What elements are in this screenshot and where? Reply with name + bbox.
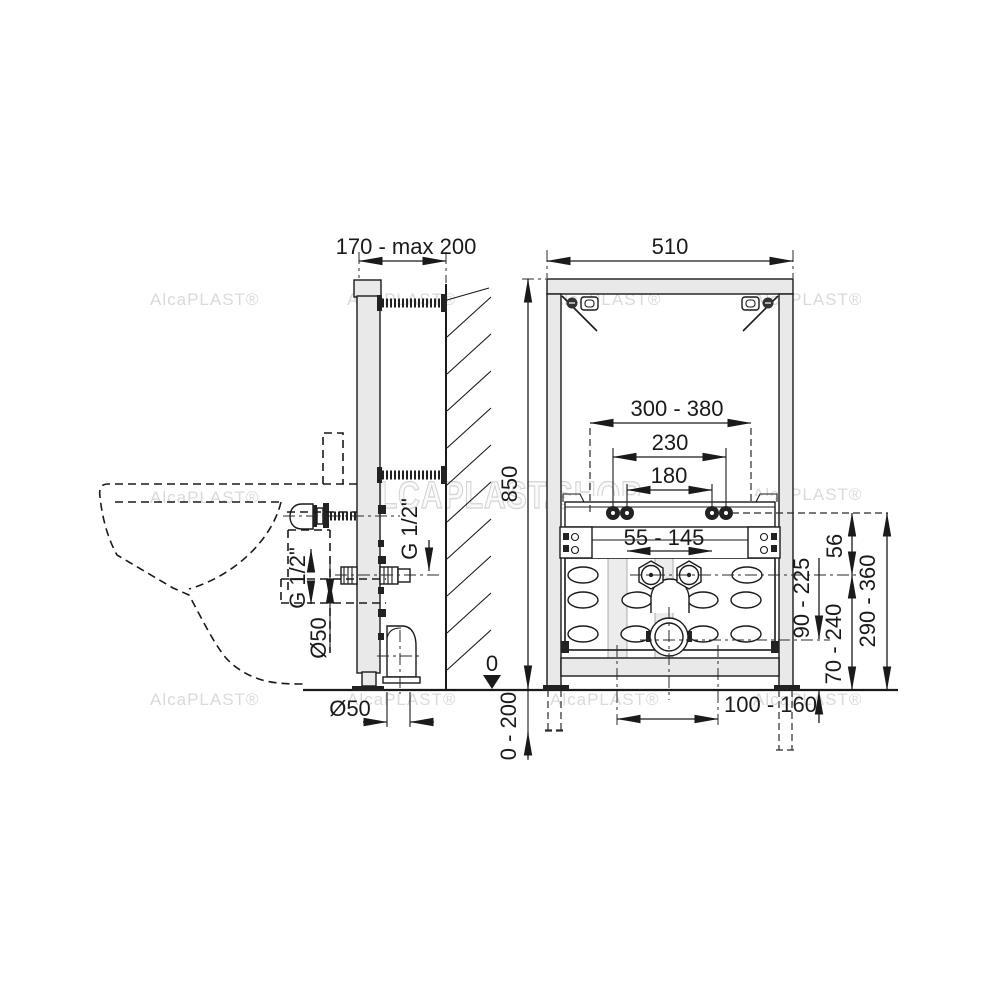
dim-depth-label: 170 - max 200	[336, 234, 477, 259]
dim-width-label: 510	[652, 234, 689, 259]
dim-water-height: 70 - 240	[821, 575, 852, 690]
dim-stud-height: 290 - 360	[855, 513, 887, 690]
watermark-text: AlcaPLAST®	[550, 690, 659, 709]
dim-thread-front-label: G 1/2"	[285, 547, 310, 609]
rail-clip-left	[561, 641, 569, 653]
frame-left-rail	[547, 294, 561, 687]
dim-stud-180-label: 180	[651, 463, 688, 488]
floor-datum: 0	[483, 651, 501, 689]
dim-rim-offset-label: 56	[822, 534, 847, 558]
dim-width: 510	[547, 234, 793, 278]
bidet-outline	[100, 433, 386, 684]
frame-foot-plate	[352, 686, 384, 691]
dim-leg-adjust-label: 0 - 200	[496, 692, 521, 761]
dim-stud-spread-label: 300 - 380	[631, 396, 724, 421]
dim-thread-front: G 1/2"	[285, 547, 311, 609]
floor-datum-label: 0	[486, 651, 498, 676]
dim-pipe-dia-label: Ø50	[306, 617, 331, 659]
rail-clip-right	[771, 641, 779, 653]
dim-stud-height-label: 290 - 360	[855, 555, 880, 648]
frame-post-foot	[362, 672, 376, 686]
watermark-text: AlcaPLAST®	[150, 290, 259, 309]
frame-top-rail	[547, 279, 793, 294]
dim-outlet-dia-label: Ø50	[329, 696, 371, 721]
left-foot-plate	[543, 685, 569, 690]
dim-water-spread: 55 - 145	[624, 525, 712, 551]
dim-rim-offset: 56	[822, 513, 852, 575]
drain-elbow	[383, 626, 420, 683]
dim-water-spread-label: 55 - 145	[624, 525, 705, 550]
dim-drain-height-label: 90 - 225	[789, 558, 814, 639]
dim-depth: 170 - max 200	[336, 234, 477, 283]
right-foot-plate	[774, 685, 800, 690]
watermark-text: AlcaPLAST®	[150, 690, 259, 709]
dim-height-label: 850	[497, 466, 522, 503]
dim-drain-offset-label: 100 - 160	[724, 692, 817, 717]
dim-thread-wall-label: G 1/2"	[397, 498, 422, 560]
watermark-text: AlcaPLAST®	[150, 488, 259, 507]
installation-diagram: AlcaPLAST® AlcaPLAST® AlcaPLAST® AlcaPLA…	[0, 0, 1000, 1000]
frame-post-cap	[354, 280, 381, 297]
dim-water-height-label: 70 - 240	[821, 604, 846, 685]
datum-triangle	[483, 675, 501, 689]
technical-drawing-page: AlcaPLAST® AlcaPLAST® AlcaPLAST® AlcaPLA…	[0, 0, 1000, 1000]
frame-post-profile	[357, 296, 380, 673]
dim-stud-230-label: 230	[652, 430, 689, 455]
frame-bottom-rail	[561, 658, 779, 676]
